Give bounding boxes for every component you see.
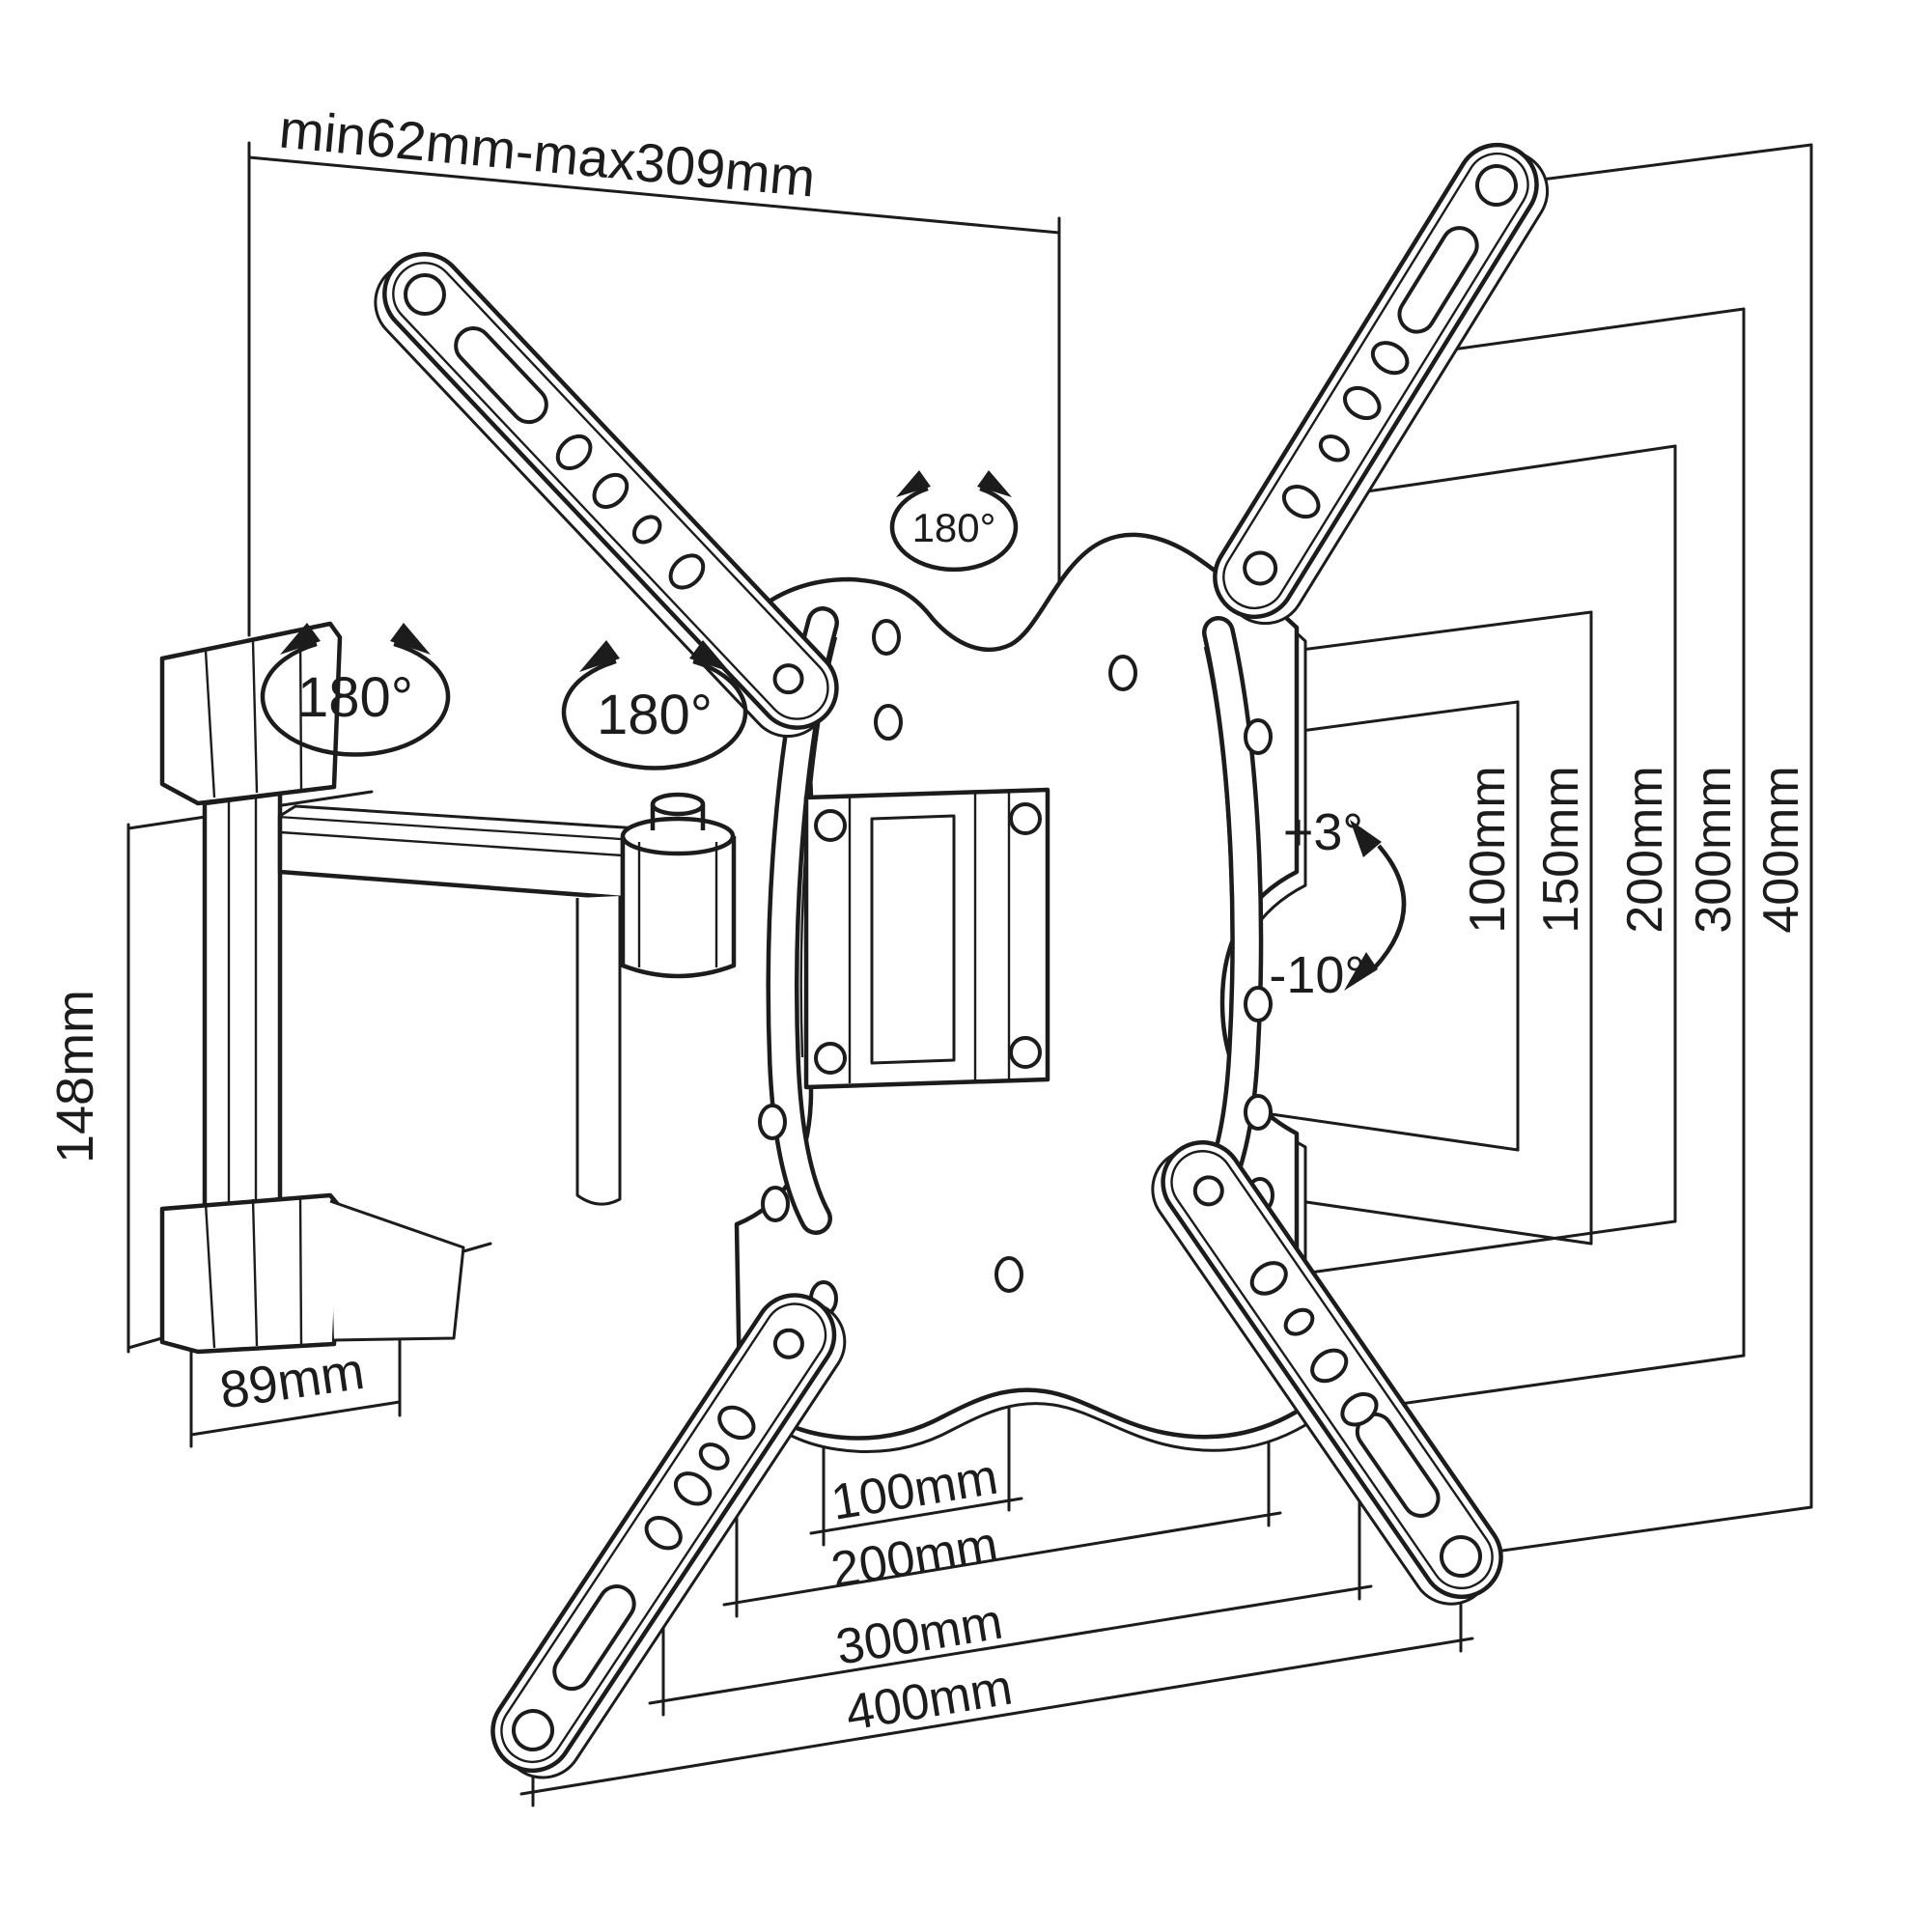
- bracket-depth-label: 89mm: [216, 1342, 368, 1420]
- extension-arm-top-right: [1200, 130, 1562, 638]
- leader-300-bottom: [1359, 1356, 1744, 1410]
- wall-plate-bottom-wedge: [162, 1195, 340, 1352]
- plate-hole: [763, 1188, 788, 1220]
- plate-hole: [874, 621, 899, 654]
- plate-hole: [876, 706, 901, 739]
- vesa-right-label-300: 300mm: [1686, 766, 1742, 933]
- plate-hole-leader-150: [1110, 657, 1135, 689]
- wall-mount-diagram: 100mm 150mm 200mm 300mm 400mm 100mm 200m…: [0, 0, 1932, 1932]
- vesa-bottom-label-400: 400mm: [842, 1660, 1016, 1742]
- clamp-inner: [872, 816, 954, 1063]
- tilt-up-label: +3°: [1283, 803, 1363, 861]
- bracket-height-label: 148mm: [46, 990, 104, 1163]
- swivel-plate-label: 180°: [912, 505, 996, 550]
- clamp-screw: [1011, 804, 1040, 833]
- dim-line-200: [724, 1513, 1280, 1605]
- extension-arm-top-left: [359, 238, 854, 752]
- arm-link-hanging: [577, 896, 620, 1204]
- tilt-annotation: +3° -10°: [1269, 803, 1404, 1004]
- extension-range-label: min62mm-max309mm: [277, 98, 818, 208]
- swivel-arm-label: 180°: [597, 684, 713, 746]
- plate-hole-leader-100: [1246, 720, 1271, 753]
- leader-200-bottom: [1269, 1221, 1675, 1278]
- vesa-right-label-150: 150mm: [1533, 766, 1589, 933]
- vesa-right-label-400: 400mm: [1753, 766, 1809, 933]
- swivel-wall-label: 180°: [297, 666, 413, 729]
- tv-clamp-bracket: [806, 790, 1048, 1087]
- vesa-right-label-200: 200mm: [1617, 766, 1673, 933]
- elbow-bolt: [653, 795, 703, 814]
- swivel-badge-plate: 180°: [892, 470, 1016, 570]
- extension-arm-bottom-left: [478, 1280, 860, 1793]
- wall-plate-bottom-side: [330, 1201, 463, 1340]
- clamp-screw: [816, 1044, 845, 1073]
- vesa-right-label-100: 100mm: [1460, 766, 1516, 933]
- plate-hole: [996, 1258, 1022, 1291]
- wall-plate-rail: [205, 794, 280, 1209]
- plate-hole: [1246, 988, 1271, 1021]
- leader-150-bottom: [1260, 1195, 1591, 1244]
- vesa-bottom-label-200: 200mm: [827, 1517, 1001, 1599]
- swivel-badge-arm: 180°: [564, 640, 745, 768]
- plate-hole: [760, 1106, 785, 1138]
- clamp-screw: [816, 811, 845, 840]
- diagram-canvas: 100mm 150mm 200mm 300mm 400mm 100mm 200m…: [0, 0, 1932, 1932]
- leader-400-bottom: [1461, 1507, 1811, 1556]
- clamp-screw: [1011, 1038, 1040, 1067]
- tilt-down-label: -10°: [1269, 946, 1365, 1004]
- plate-hole: [1246, 1096, 1271, 1129]
